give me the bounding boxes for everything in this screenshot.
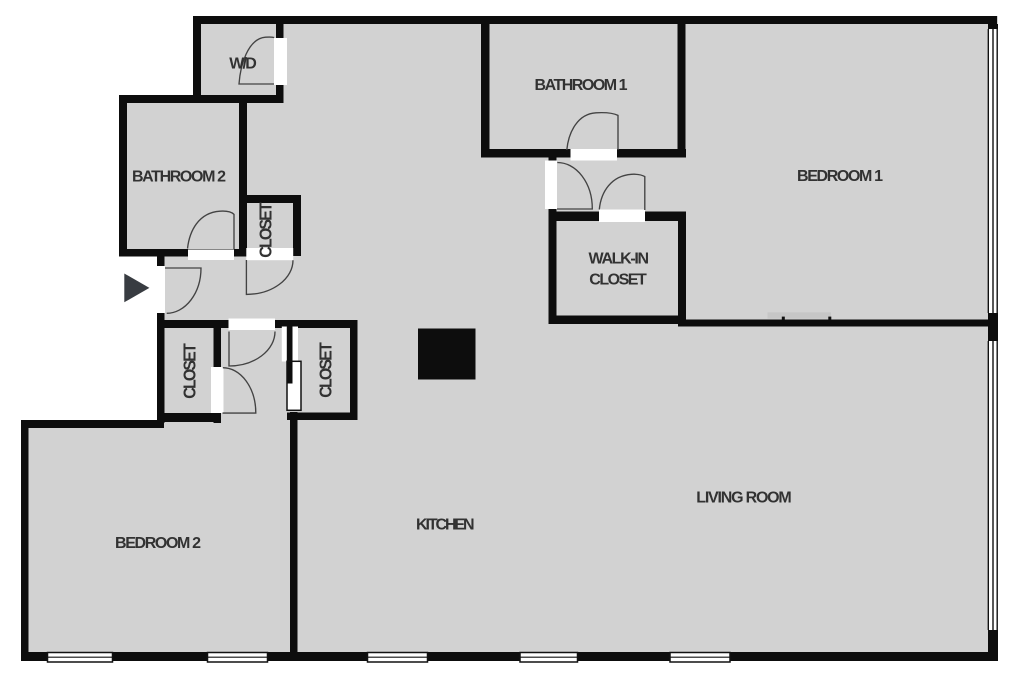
- svg-text:LIVING ROOM: LIVING ROOM: [696, 489, 792, 506]
- svg-text:BATHROOM 1: BATHROOM 1: [535, 77, 628, 94]
- svg-text:CLOSET: CLOSET: [180, 343, 200, 399]
- svg-text:BEDROOM 1: BEDROOM 1: [797, 168, 883, 185]
- svg-text:BATHROOM 2: BATHROOM 2: [132, 168, 226, 185]
- svg-text:CLOSET: CLOSET: [256, 202, 276, 258]
- svg-text:BEDROOM 2: BEDROOM 2: [115, 535, 201, 552]
- svg-text:CLOSET: CLOSET: [589, 271, 647, 288]
- svg-text:W/D: W/D: [229, 56, 257, 73]
- svg-text:CLOSET: CLOSET: [316, 342, 336, 398]
- svg-text:KITCHEN: KITCHEN: [416, 517, 475, 534]
- svg-text:WALK-IN: WALK-IN: [589, 251, 650, 268]
